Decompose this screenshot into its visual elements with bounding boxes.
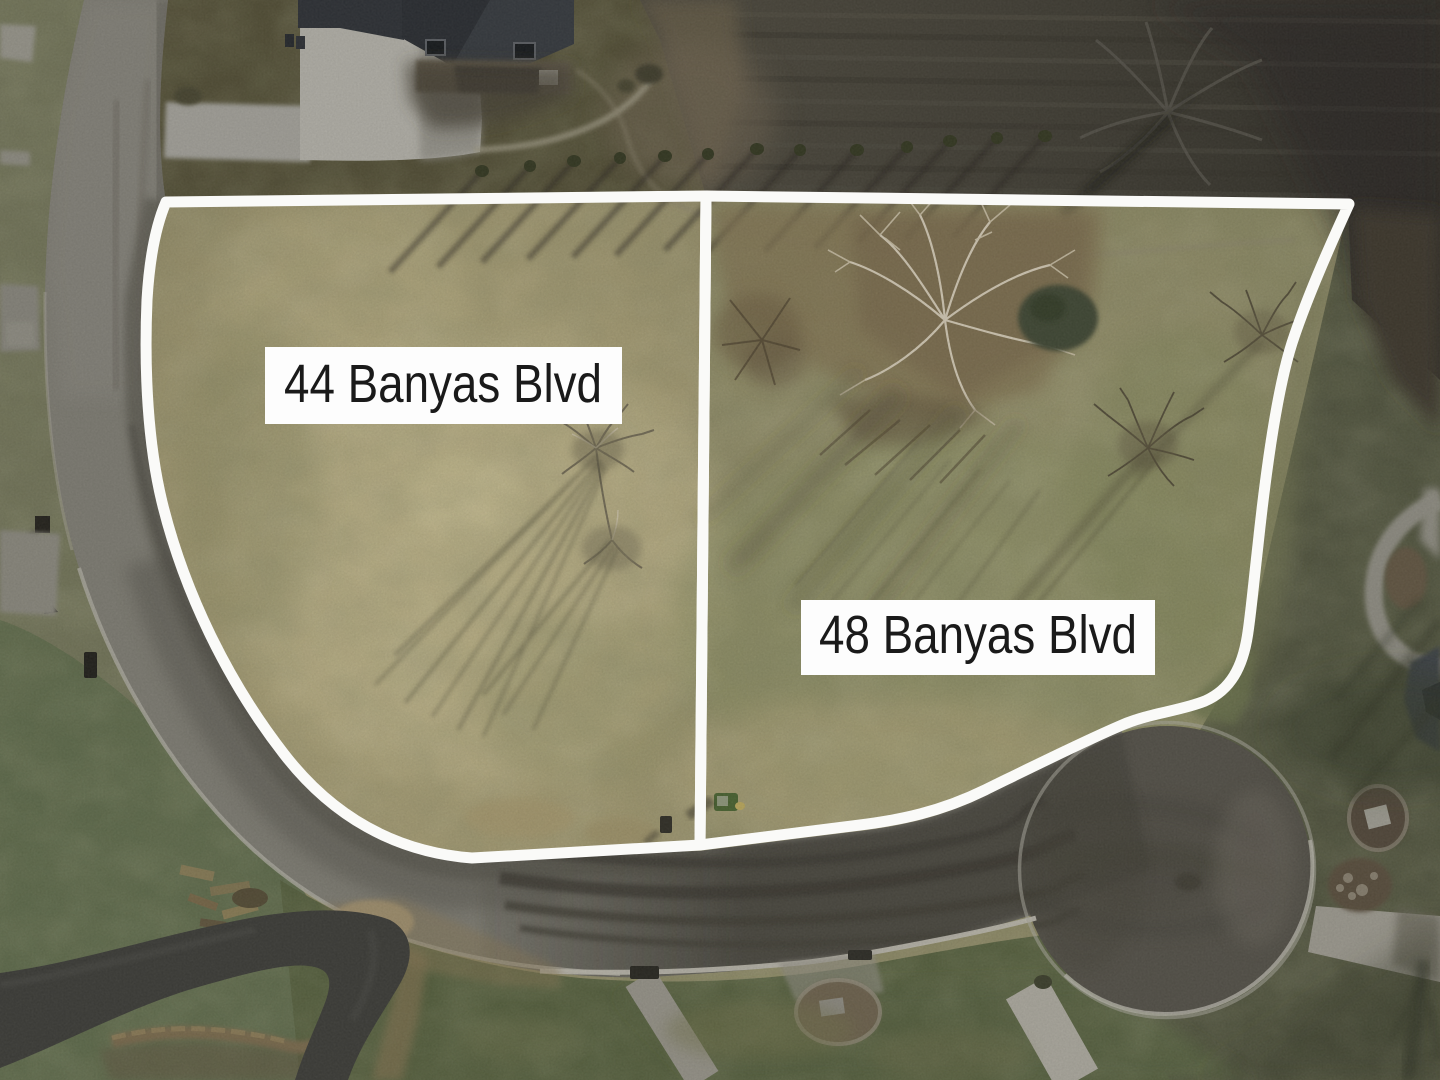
svg-text:48 Banyas Blvd: 48 Banyas Blvd xyxy=(819,605,1137,665)
svg-text:44 Banyas Blvd: 44 Banyas Blvd xyxy=(284,354,602,414)
